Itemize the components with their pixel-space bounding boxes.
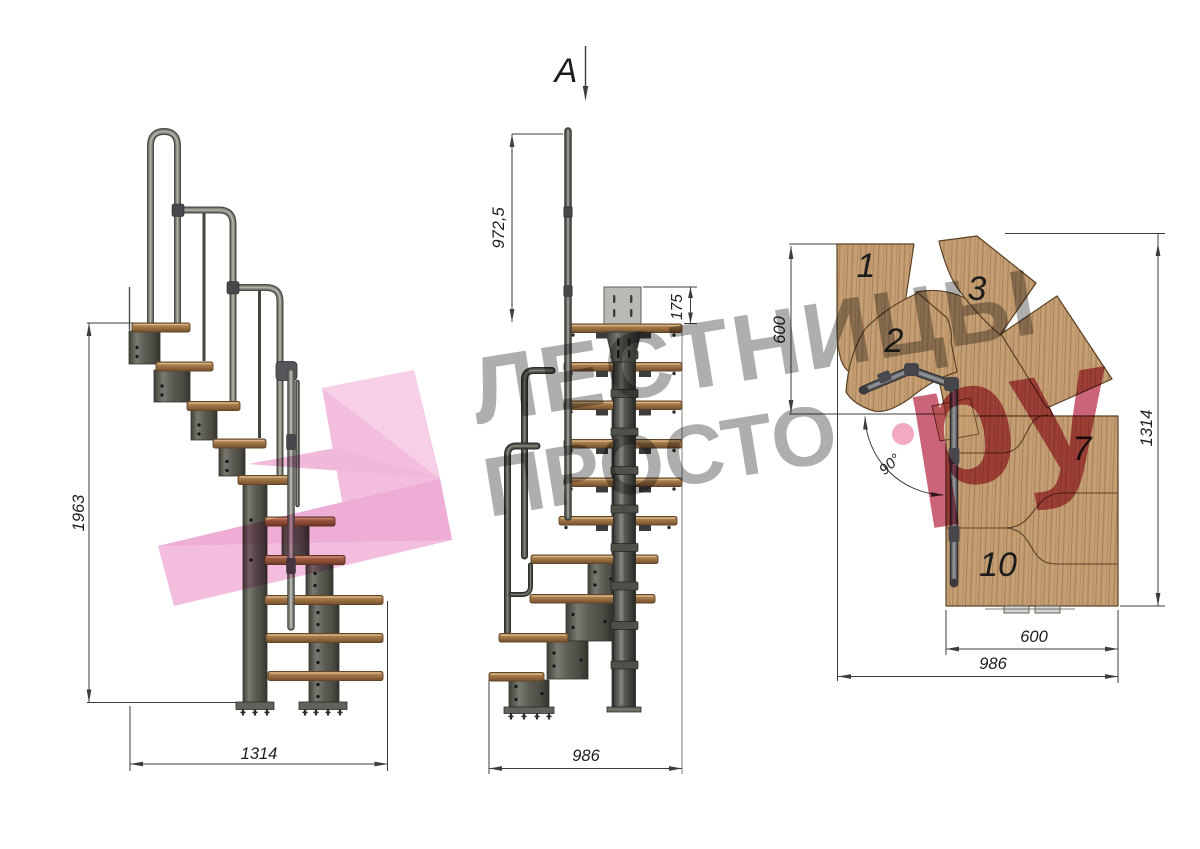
svg-text:986: 986 — [979, 655, 1007, 673]
svg-text:972,5: 972,5 — [490, 207, 508, 249]
svg-text:ру: ру — [890, 300, 1127, 532]
svg-text:1314: 1314 — [1138, 410, 1156, 447]
svg-text:A: A — [553, 52, 578, 90]
svg-text:986: 986 — [572, 747, 600, 765]
svg-text:1963: 1963 — [70, 494, 88, 532]
svg-text:1314: 1314 — [241, 745, 278, 763]
svg-text:600: 600 — [1020, 628, 1048, 646]
svg-text:10: 10 — [979, 546, 1017, 584]
